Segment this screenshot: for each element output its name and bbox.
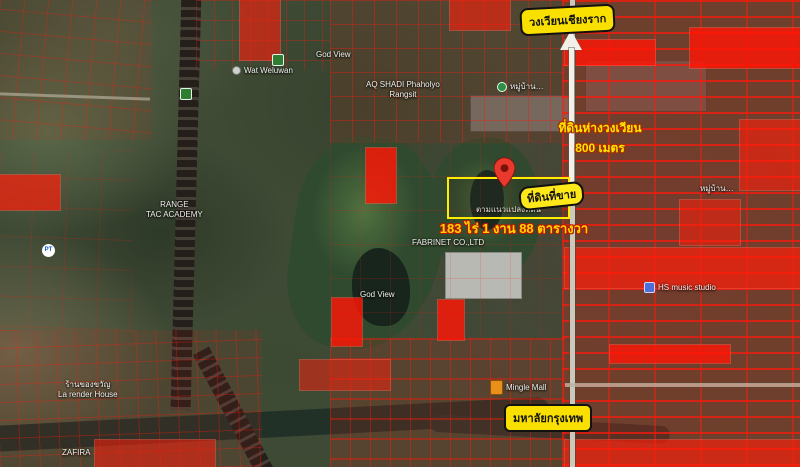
poi-god-view-north: God View — [316, 50, 351, 60]
direction-arrow-shaft — [569, 48, 574, 185]
location-pin-icon — [494, 157, 515, 188]
music-icon — [644, 282, 655, 293]
poi-label: HS music studio — [658, 283, 716, 293]
satellite-map[interactable]: Wat WeluwanGod ViewAQ SHADI PhaholyoRang… — [0, 0, 800, 467]
poi-label: Rangsit — [366, 90, 440, 100]
poi-label: God View — [316, 50, 351, 60]
poi-god-view-mid: God View — [360, 290, 395, 300]
poi-layer: Wat WeluwanGod ViewAQ SHADI PhaholyoRang… — [0, 0, 800, 467]
poi-label: RANGE — [160, 200, 188, 210]
pt-icon: PT — [42, 244, 55, 257]
poi-label: ร้านของขวัญ — [65, 380, 110, 390]
poi-fabrinet: FABRINET CO.,LTD — [412, 238, 484, 248]
poi-wat-weluwan: Wat Weluwan — [232, 66, 293, 76]
poi-label: AQ SHADI Phaholyo — [366, 80, 440, 90]
poi-mingle-mall: Mingle Mall — [490, 380, 546, 395]
poi-label: TAC ACADEMY — [146, 210, 203, 220]
poi-label: หมู่บ้าน… — [700, 184, 734, 194]
distance-line1: ที่ดินห่างวงเวียน — [558, 121, 641, 135]
poi-aq-shadi: AQ SHADI PhaholyoRangsit — [366, 80, 440, 99]
poi-label: Mingle Mall — [506, 383, 546, 393]
distance-line2: 800 เมตร — [575, 141, 625, 155]
poi-label: God View — [360, 290, 395, 300]
poi-pt-station: PT — [42, 244, 55, 257]
dot-green-icon — [497, 82, 507, 92]
poi-label: La render House — [58, 390, 118, 400]
poi-label: ZAFIRA — [62, 448, 90, 458]
poi-village-east: หมู่บ้าน… — [700, 184, 734, 194]
poi-hs-music: HS music studio — [644, 282, 716, 293]
bag-icon — [490, 380, 503, 395]
poi-la-render-house: ร้านของขวัญLa render House — [58, 380, 118, 399]
roundabout-label-bubble: วงเวียนเชียงราก — [519, 4, 616, 37]
dot-icon — [232, 66, 241, 75]
poi-label: FABRINET CO.,LTD — [412, 238, 484, 248]
distance-annotation: ที่ดินห่างวงเวียน 800 เมตร — [548, 118, 652, 159]
poi-zafira: ZAFIRA — [62, 448, 90, 458]
poi-label: Wat Weluwan — [244, 66, 293, 76]
poi-label: หมู่บ้าน… — [510, 82, 544, 92]
poi-village-north: หมู่บ้าน… — [497, 82, 544, 92]
university-label-bubble: มหาลัยกรุงเทพ — [504, 404, 592, 432]
poi-tac-academy: RANGETAC ACADEMY — [146, 200, 203, 219]
land-area-text: 183 ไร่ 1 งาน 88 ตารางวา — [434, 218, 594, 239]
